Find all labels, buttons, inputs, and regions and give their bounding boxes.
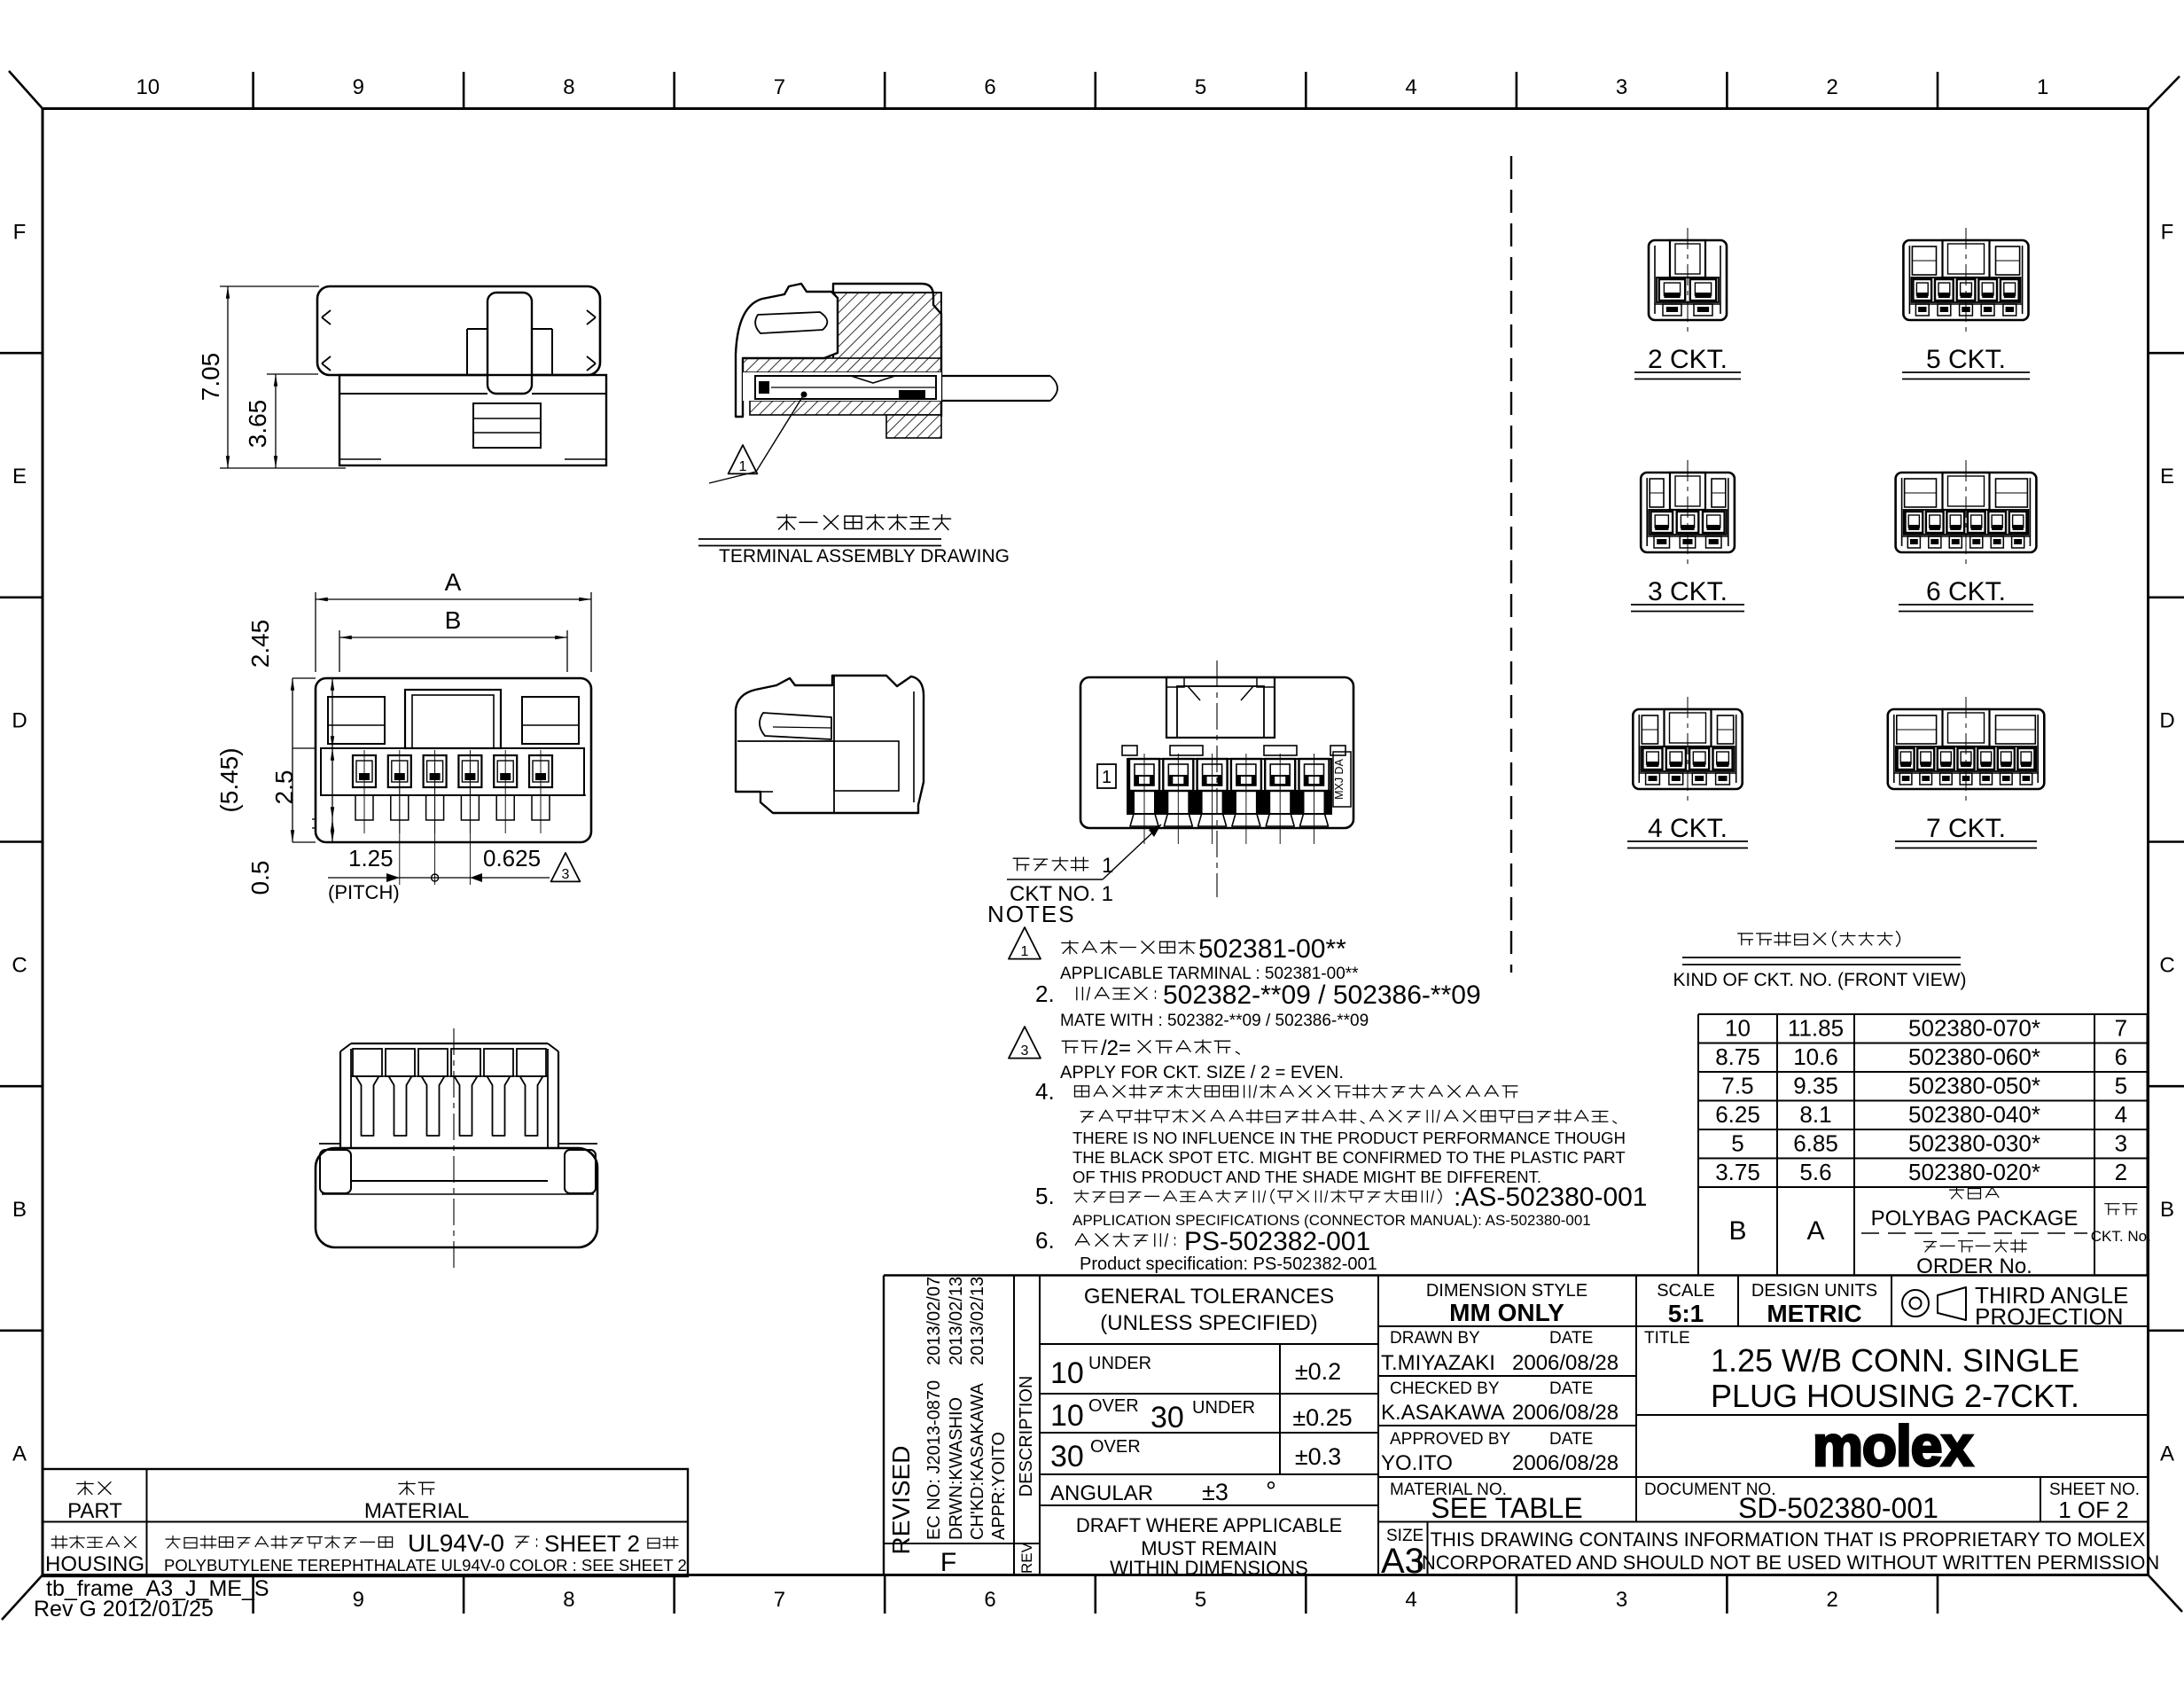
svg-text:POLYBAG PACKAGE: POLYBAG PACKAGE — [1871, 1207, 2079, 1231]
svg-text:1.25 W/B CONN. SINGLE: 1.25 W/B CONN. SINGLE — [1711, 1342, 2079, 1379]
svg-text:0.625: 0.625 — [483, 845, 541, 871]
svg-text:1: 1 — [1021, 944, 1029, 959]
svg-text:4.: 4. — [1035, 1078, 1055, 1105]
svg-text:5: 5 — [1195, 75, 1206, 99]
svg-text:3: 3 — [2115, 1130, 2127, 1157]
svg-text:THERE IS NO INFLUENCE IN THE P: THERE IS NO INFLUENCE IN THE PRODUCT PER… — [1072, 1129, 1626, 1147]
svg-text:(UNLESS SPECIFIED): (UNLESS SPECIFIED) — [1100, 1311, 1317, 1335]
svg-text:DRAWN BY: DRAWN BY — [1390, 1329, 1480, 1348]
svg-text:30: 30 — [1050, 1440, 1084, 1473]
svg-text:DATE: DATE — [1549, 1329, 1593, 1348]
svg-text:3: 3 — [1616, 1588, 1627, 1612]
svg-text:MXJ DA: MXJ DA — [1333, 758, 1345, 800]
svg-text:E: E — [2160, 465, 2174, 488]
svg-text:F: F — [2161, 220, 2174, 244]
svg-text:OVER: OVER — [1088, 1396, 1139, 1416]
svg-text:3.65: 3.65 — [244, 400, 271, 449]
svg-text:D: D — [2159, 709, 2174, 733]
svg-text:8.1: 8.1 — [1799, 1101, 1831, 1128]
svg-text:0.5: 0.5 — [246, 861, 274, 895]
svg-text:CKT NO. 1: CKT NO. 1 — [1010, 882, 1113, 906]
svg-text:MATERIAL: MATERIAL — [364, 1499, 469, 1523]
svg-text:4 CKT.: 4 CKT. — [1648, 814, 1728, 843]
svg-text:F: F — [940, 1548, 956, 1577]
svg-text:3: 3 — [1616, 75, 1627, 99]
svg-text:YO.ITO: YO.ITO — [1381, 1451, 1453, 1475]
svg-text:T.MIYAZAKI: T.MIYAZAKI — [1381, 1351, 1495, 1375]
svg-text:5: 5 — [1195, 1588, 1206, 1612]
svg-text:A: A — [445, 568, 462, 596]
svg-text:SCALE: SCALE — [1657, 1281, 1715, 1301]
svg-text:APPROVED BY: APPROVED BY — [1390, 1430, 1511, 1449]
svg-text:2: 2 — [1827, 75, 1838, 99]
svg-text:2.5: 2.5 — [270, 770, 298, 805]
svg-text:5:1: 5:1 — [1668, 1300, 1704, 1327]
svg-text:3.75: 3.75 — [1715, 1159, 1760, 1185]
svg-text:F: F — [13, 220, 27, 244]
svg-text:5.: 5. — [1035, 1183, 1055, 1209]
svg-text:4: 4 — [2115, 1101, 2127, 1128]
svg-text:502380-040*: 502380-040* — [1908, 1101, 2040, 1128]
svg-text:5: 5 — [1731, 1130, 1743, 1157]
svg-text:6.85: 6.85 — [1793, 1130, 1838, 1157]
svg-text:SD-502380-001: SD-502380-001 — [1738, 1492, 1938, 1524]
svg-text:INCORPORATED AND SHOULD NOT BE: INCORPORATED AND SHOULD NOT BE USED WITH… — [1416, 1551, 2160, 1574]
svg-text:8: 8 — [563, 1588, 574, 1612]
svg-text:B: B — [12, 1198, 27, 1222]
svg-text:POLYBUTYLENE TEREPHTHALATE UL9: POLYBUTYLENE TEREPHTHALATE UL94V-0 COLOR… — [164, 1556, 687, 1575]
svg-text:9.35: 9.35 — [1793, 1073, 1838, 1099]
svg-text:9: 9 — [353, 1588, 364, 1612]
svg-text:PS-502382-001: PS-502382-001 — [1184, 1227, 1370, 1256]
svg-text:D: D — [12, 709, 27, 733]
svg-text:10: 10 — [1050, 1399, 1084, 1433]
svg-text:30: 30 — [1150, 1401, 1184, 1434]
svg-text:A: A — [12, 1442, 27, 1466]
svg-text:PLUG HOUSING 2-7CKT.: PLUG HOUSING 2-7CKT. — [1711, 1378, 2079, 1414]
svg-text:MATE WITH : 502382-**09 / 5023: MATE WITH : 502382-**09 / 502386-**09 — [1060, 1012, 1369, 1030]
svg-text:1: 1 — [1102, 768, 1111, 787]
svg-text:Product specification: PS-5023: Product specification: PS-502382-001 — [1080, 1254, 1377, 1274]
svg-text:1: 1 — [2037, 75, 2048, 99]
svg-text:(5.45): (5.45) — [215, 747, 243, 812]
svg-text:±0.2: ±0.2 — [1295, 1358, 1341, 1385]
svg-text:EC NO: J2013-0870: EC NO: J2013-0870 — [924, 1380, 944, 1540]
svg-text:±0.25: ±0.25 — [1292, 1404, 1352, 1431]
svg-text:DRWN:KWASHIO: DRWN:KWASHIO — [947, 1397, 966, 1540]
svg-text:TITLE: TITLE — [1644, 1329, 1690, 1348]
svg-text:502380-060*: 502380-060* — [1908, 1043, 2040, 1070]
svg-text:DATE: DATE — [1549, 1379, 1593, 1398]
svg-text:7.05: 7.05 — [197, 353, 224, 402]
svg-text:CHECKED BY: CHECKED BY — [1390, 1379, 1500, 1398]
svg-text:6: 6 — [984, 75, 995, 99]
svg-text:PROJECTION: PROJECTION — [1975, 1303, 2124, 1330]
svg-text:6: 6 — [2115, 1043, 2127, 1070]
svg-text:8.75: 8.75 — [1715, 1043, 1760, 1070]
svg-text:WITHIN DIMENSIONS: WITHIN DIMENSIONS — [1110, 1557, 1308, 1579]
svg-text:KIND OF CKT. NO. (FRONT VIEW): KIND OF CKT. NO. (FRONT VIEW) — [1673, 970, 1967, 990]
svg-text:7: 7 — [2115, 1015, 2127, 1042]
svg-text:DIMENSION STYLE: DIMENSION STYLE — [1426, 1281, 1587, 1301]
svg-text:6 CKT.: 6 CKT. — [1926, 577, 2006, 606]
svg-text:2: 2 — [1827, 1588, 1838, 1612]
svg-text:502380-070*: 502380-070* — [1908, 1015, 2040, 1042]
svg-text:C: C — [12, 953, 27, 977]
svg-text:2006/08/28: 2006/08/28 — [1512, 1451, 1618, 1475]
svg-text:7.5: 7.5 — [1721, 1073, 1753, 1099]
svg-text:502380-030*: 502380-030* — [1908, 1130, 2040, 1157]
svg-text:CKT. No.: CKT. No. — [2091, 1228, 2151, 1245]
svg-text:Rev G 2012/01/25: Rev G 2012/01/25 — [34, 1597, 214, 1622]
svg-text:DESCRIPTION: DESCRIPTION — [1017, 1376, 1036, 1497]
svg-text:HOUSING: HOUSING — [45, 1552, 144, 1576]
svg-text:2: 2 — [2115, 1159, 2127, 1185]
svg-text:10: 10 — [136, 75, 160, 99]
svg-text:6.25: 6.25 — [1715, 1101, 1760, 1128]
svg-text:DRAFT WHERE APPLICABLE: DRAFT WHERE APPLICABLE — [1076, 1514, 1342, 1536]
svg-text:2013/02/13: 2013/02/13 — [947, 1277, 966, 1365]
svg-text:THIS DRAWING CONTAINS INFORMAT: THIS DRAWING CONTAINS INFORMATION THAT I… — [1431, 1528, 2146, 1551]
svg-text:3: 3 — [562, 867, 570, 882]
svg-text:ANGULAR: ANGULAR — [1050, 1481, 1153, 1505]
svg-text:SEE TABLE: SEE TABLE — [1431, 1492, 1582, 1524]
svg-text:REV: REV — [1018, 1542, 1035, 1574]
svg-text:B: B — [1728, 1216, 1746, 1246]
svg-text:GENERAL TOLERANCES: GENERAL TOLERANCES — [1084, 1285, 1334, 1309]
svg-text:±3: ±3 — [1202, 1479, 1228, 1505]
svg-text:PART: PART — [67, 1499, 122, 1523]
svg-text:TERMINAL ASSEMBLY DRAWING: TERMINAL ASSEMBLY DRAWING — [719, 546, 1010, 567]
svg-text:DESIGN UNITS: DESIGN UNITS — [1751, 1281, 1877, 1301]
svg-text:MM ONLY: MM ONLY — [1449, 1299, 1564, 1326]
svg-text:2013/02/13: 2013/02/13 — [968, 1277, 987, 1365]
svg-text:4: 4 — [1405, 1588, 1416, 1612]
svg-text:6: 6 — [984, 1588, 995, 1612]
svg-text:UL94V-0: UL94V-0 — [408, 1529, 504, 1557]
svg-text:4: 4 — [1405, 75, 1416, 99]
svg-text:UNDER: UNDER — [1192, 1398, 1255, 1418]
svg-text:5.6: 5.6 — [1799, 1159, 1831, 1185]
svg-text:2.: 2. — [1035, 981, 1055, 1007]
svg-text:10: 10 — [1725, 1015, 1751, 1042]
svg-text:B: B — [2160, 1198, 2174, 1222]
svg-text:7: 7 — [774, 75, 785, 99]
svg-text:REVISED: REVISED — [887, 1446, 915, 1555]
svg-text:3: 3 — [1021, 1043, 1029, 1059]
svg-text:SHEET 2: SHEET 2 — [544, 1530, 640, 1557]
svg-text:10: 10 — [1050, 1356, 1084, 1390]
svg-text:502382-**09 / 502386-**09: 502382-**09 / 502386-**09 — [1163, 981, 1481, 1010]
svg-text:1: 1 — [739, 459, 747, 474]
svg-text:/2=: /2= — [1101, 1036, 1131, 1060]
svg-text:1 OF 2: 1 OF 2 — [2058, 1497, 2128, 1523]
svg-text:10.6: 10.6 — [1793, 1043, 1838, 1070]
svg-text:8: 8 — [563, 75, 574, 99]
svg-text:2 CKT.: 2 CKT. — [1648, 345, 1728, 374]
svg-text::AS-502380-001: :AS-502380-001 — [1454, 1183, 1648, 1212]
svg-text:B: B — [445, 606, 462, 634]
svg-text:CH'KD:KASAKAWA: CH'KD:KASAKAWA — [968, 1383, 987, 1540]
svg-text:°: ° — [1266, 1477, 1276, 1506]
svg-text:molex: molex — [1813, 1414, 1973, 1478]
svg-text:UNDER: UNDER — [1088, 1354, 1151, 1373]
svg-text:7 CKT.: 7 CKT. — [1926, 814, 2006, 843]
svg-text:E: E — [12, 465, 27, 488]
svg-text:3 CKT.: 3 CKT. — [1648, 577, 1728, 606]
svg-text:502381-00**: 502381-00** — [1198, 934, 1346, 964]
svg-text:1: 1 — [1102, 854, 1113, 878]
svg-text:(PITCH): (PITCH) — [328, 881, 400, 903]
svg-text:7: 7 — [774, 1588, 785, 1612]
svg-text:THE BLACK SPOT ETC. MIGHT BE C: THE BLACK SPOT ETC. MIGHT BE CONFIRMED T… — [1072, 1148, 1626, 1167]
svg-text:5: 5 — [2115, 1073, 2127, 1099]
svg-text:2013/02/07: 2013/02/07 — [924, 1277, 944, 1365]
svg-text:502380-020*: 502380-020* — [1908, 1159, 2040, 1185]
svg-text:K.ASAKAWA: K.ASAKAWA — [1381, 1401, 1505, 1425]
svg-text:502380-050*: 502380-050* — [1908, 1073, 2040, 1099]
svg-text:METRIC: METRIC — [1767, 1300, 1861, 1327]
svg-text:A: A — [1806, 1216, 1824, 1246]
svg-text:APPR:YOITO: APPR:YOITO — [989, 1432, 1009, 1540]
svg-text:1.25: 1.25 — [348, 845, 394, 871]
svg-text:±0.3: ±0.3 — [1295, 1443, 1341, 1470]
svg-text:2006/08/28: 2006/08/28 — [1512, 1351, 1618, 1375]
svg-text:OVER: OVER — [1090, 1437, 1141, 1457]
svg-text:5 CKT.: 5 CKT. — [1926, 345, 2006, 374]
svg-text:2.45: 2.45 — [246, 620, 274, 668]
svg-text:APPLY FOR CKT. SIZE / 2 = EVEN: APPLY FOR CKT. SIZE / 2 = EVEN. — [1060, 1063, 1344, 1082]
svg-text:A: A — [2160, 1442, 2174, 1466]
svg-text:11.85: 11.85 — [1788, 1015, 1844, 1042]
svg-text:2006/08/28: 2006/08/28 — [1512, 1401, 1618, 1425]
svg-text:6.: 6. — [1035, 1227, 1055, 1254]
svg-text:C: C — [2159, 953, 2174, 977]
svg-text:DATE: DATE — [1549, 1430, 1593, 1449]
svg-text:9: 9 — [353, 75, 364, 99]
